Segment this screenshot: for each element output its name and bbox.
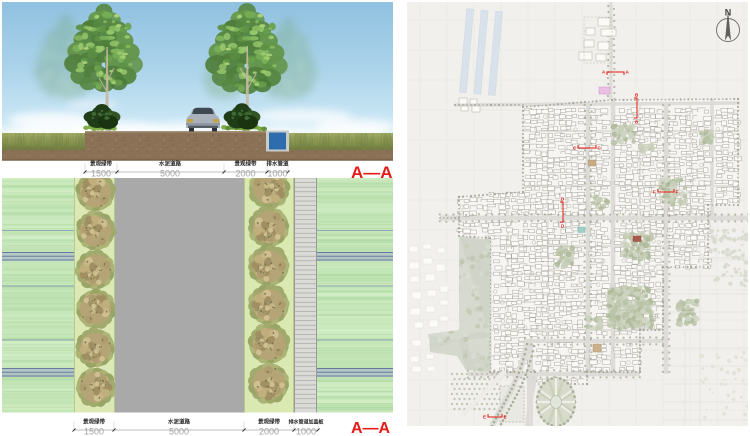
svg-text:排水管道加盖板: 排水管道加盖板 — [288, 419, 324, 426]
svg-text:5000: 5000 — [160, 169, 180, 179]
svg-text:A—A: A—A — [351, 420, 391, 436]
svg-text:景观绿带: 景观绿带 — [257, 418, 281, 426]
svg-text:排水管道: 排水管道 — [266, 160, 289, 168]
svg-text:5000: 5000 — [169, 427, 189, 436]
svg-text:2000: 2000 — [235, 169, 255, 179]
svg-text:N: N — [725, 8, 732, 18]
svg-text:水泥道路: 水泥道路 — [168, 418, 191, 426]
svg-text:1500: 1500 — [91, 169, 111, 179]
svg-text:景观绿带: 景观绿带 — [82, 418, 106, 426]
svg-text:水泥道路: 水泥道路 — [159, 160, 182, 168]
svg-text:1500: 1500 — [84, 427, 104, 436]
svg-text:F: F — [653, 190, 656, 195]
svg-text:1000: 1000 — [296, 427, 316, 436]
svg-text:景观绿带: 景观绿带 — [89, 160, 113, 168]
svg-text:2000: 2000 — [259, 427, 279, 436]
svg-text:景观绿带: 景观绿带 — [233, 160, 257, 168]
svg-text:E: E — [504, 415, 507, 420]
svg-text:F: F — [676, 190, 679, 195]
svg-text:1000: 1000 — [267, 169, 287, 179]
svg-text:E: E — [483, 415, 486, 420]
